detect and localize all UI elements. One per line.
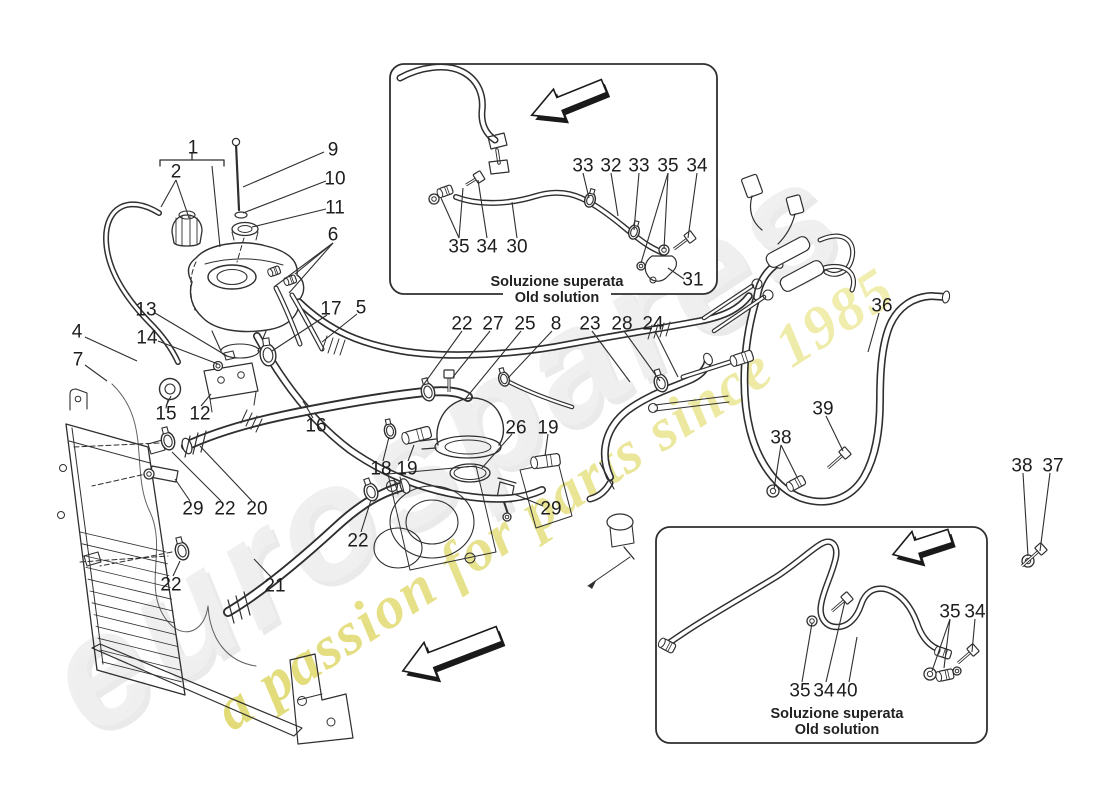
leader-line bbox=[85, 365, 107, 381]
part-label-1[interactable]: 1 bbox=[188, 138, 199, 159]
part-label-35[interactable]: 35 bbox=[657, 156, 678, 177]
part-label-35[interactable]: 35 bbox=[448, 237, 469, 258]
part-label-10[interactable]: 10 bbox=[324, 169, 345, 190]
part-label-34[interactable]: 34 bbox=[686, 156, 708, 177]
inset-caption-english: Old solution bbox=[515, 290, 600, 306]
part-label-22[interactable]: 22 bbox=[451, 314, 472, 335]
part-label-4[interactable]: 4 bbox=[72, 322, 83, 343]
part-label-9[interactable]: 9 bbox=[328, 140, 339, 161]
part-label-27[interactable]: 27 bbox=[482, 314, 503, 335]
part-label-2[interactable]: 2 bbox=[171, 162, 182, 183]
leader-line bbox=[826, 416, 843, 451]
part-label-34[interactable]: 34 bbox=[813, 681, 835, 702]
part-label-24[interactable]: 24 bbox=[642, 314, 664, 335]
part-label-25[interactable]: 25 bbox=[514, 314, 535, 335]
part-label-33[interactable]: 33 bbox=[628, 156, 649, 177]
leader-line bbox=[243, 181, 326, 213]
part-label-22[interactable]: 22 bbox=[214, 499, 235, 520]
part-label-7[interactable]: 7 bbox=[73, 350, 84, 371]
part-label-17[interactable]: 17 bbox=[320, 299, 341, 320]
leader-line bbox=[243, 152, 324, 187]
inset-caption-italian: Soluzione superata bbox=[771, 706, 905, 722]
leader-line bbox=[1040, 473, 1050, 551]
cooling-system-parts-diagram: eurospares eurospares a passion for part… bbox=[0, 0, 1100, 800]
part-label-19[interactable]: 19 bbox=[537, 418, 558, 439]
leader-line bbox=[212, 166, 220, 247]
part-label-16[interactable]: 16 bbox=[305, 416, 326, 437]
part-label-23[interactable]: 23 bbox=[579, 314, 600, 335]
part-label-22[interactable]: 22 bbox=[347, 531, 368, 552]
part-label-5[interactable]: 5 bbox=[356, 298, 367, 319]
part-label-35[interactable]: 35 bbox=[939, 602, 960, 623]
leader-line bbox=[289, 243, 333, 293]
part-label-29[interactable]: 29 bbox=[540, 499, 561, 520]
part-label-18[interactable]: 18 bbox=[370, 459, 391, 480]
part-label-26[interactable]: 26 bbox=[505, 418, 526, 439]
part-label-6[interactable]: 6 bbox=[328, 225, 339, 246]
part-label-34[interactable]: 34 bbox=[476, 237, 498, 258]
part-label-37[interactable]: 37 bbox=[1042, 456, 1063, 477]
leader-line bbox=[85, 337, 137, 361]
leader-line bbox=[252, 209, 326, 227]
part-label-12[interactable]: 12 bbox=[189, 404, 210, 425]
part-label-35[interactable]: 35 bbox=[789, 681, 810, 702]
parts-diagram-page: eurospares eurospares a passion for part… bbox=[0, 0, 1100, 800]
part-label-36[interactable]: 36 bbox=[871, 296, 892, 317]
inset-caption-english: Old solution bbox=[795, 722, 880, 738]
leader-line bbox=[155, 313, 227, 356]
leader-line bbox=[172, 452, 221, 501]
leader-line bbox=[158, 341, 218, 364]
part-label-38[interactable]: 38 bbox=[1011, 456, 1032, 477]
part-label-15[interactable]: 15 bbox=[155, 404, 176, 425]
part-label-20[interactable]: 20 bbox=[246, 499, 267, 520]
part-label-33[interactable]: 33 bbox=[572, 156, 593, 177]
part-label-30[interactable]: 30 bbox=[506, 237, 527, 258]
part-label-29[interactable]: 29 bbox=[182, 499, 203, 520]
part-label-22[interactable]: 22 bbox=[160, 575, 181, 596]
part-label-34[interactable]: 34 bbox=[964, 602, 986, 623]
leader-line bbox=[1023, 473, 1028, 556]
leader-line bbox=[176, 180, 189, 218]
part-label-11[interactable]: 11 bbox=[325, 198, 345, 219]
leader-line bbox=[161, 180, 176, 207]
leader-line bbox=[781, 445, 797, 477]
part-label-32[interactable]: 32 bbox=[600, 156, 621, 177]
part-label-14[interactable]: 14 bbox=[136, 328, 158, 349]
part-label-31[interactable]: 31 bbox=[682, 270, 703, 291]
part-label-19[interactable]: 19 bbox=[396, 459, 417, 480]
part-label-40[interactable]: 40 bbox=[836, 681, 857, 702]
inset-caption-italian: Soluzione superata bbox=[491, 274, 625, 290]
part-label-39[interactable]: 39 bbox=[812, 399, 833, 420]
part-label-28[interactable]: 28 bbox=[611, 314, 632, 335]
part-label-13[interactable]: 13 bbox=[135, 300, 156, 321]
part-label-8[interactable]: 8 bbox=[551, 314, 562, 335]
part-label-21[interactable]: 21 bbox=[264, 576, 285, 597]
part-label-38[interactable]: 38 bbox=[770, 428, 791, 449]
